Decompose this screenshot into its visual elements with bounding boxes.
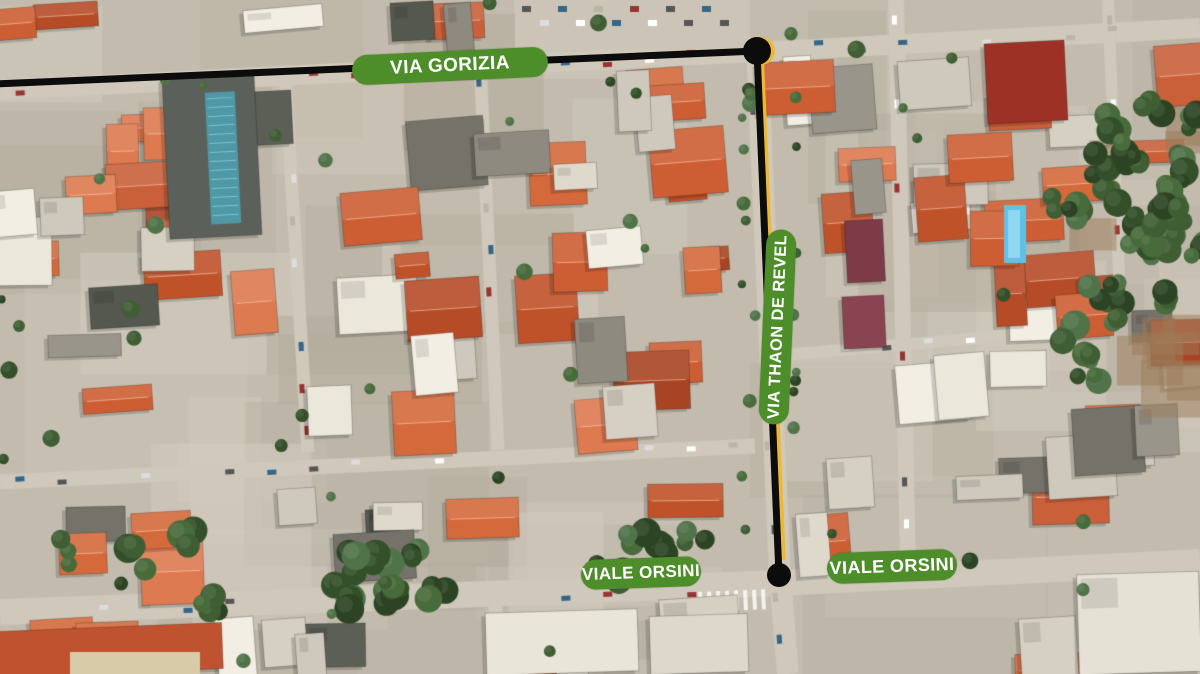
street-label-text: VIA THAON DE REVEL [763, 234, 790, 419]
annotated-satellite-map: VIA GORIZIA VIA THAON DE REVEL VIALE ORS… [0, 0, 1200, 674]
route-node-gorizia-thaon [743, 37, 771, 65]
street-label-viale-orsini-west: VIALE ORSINI [581, 556, 702, 590]
street-label-text: VIA GORIZIA [390, 52, 511, 80]
street-label-viale-orsini-east: VIALE ORSINI [826, 548, 957, 584]
street-label-text: VIALE ORSINI [829, 553, 954, 578]
street-label-text: VIALE ORSINI [582, 561, 701, 585]
route-node-thaon-orsini [767, 563, 791, 587]
